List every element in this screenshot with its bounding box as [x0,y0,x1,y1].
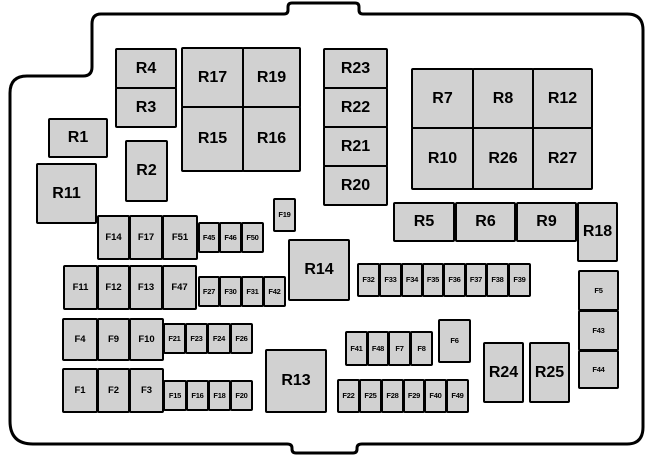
fuse-F43: F43 [578,310,619,351]
fuse-F35: F35 [422,263,444,297]
fuse-F7: F7 [388,331,411,366]
relay-R11: R11 [36,163,97,224]
fuse-F1: F1 [62,368,98,413]
fuse-F31: F31 [241,276,264,307]
fuse-F20: F20 [230,380,253,411]
relay-R1: R1 [48,118,108,158]
fuse-F38: F38 [486,263,509,297]
fuse-F30: F30 [219,276,242,307]
fuse-F28: F28 [381,379,404,413]
fuse-box-diagram: R4R3R17R19R15R16R1R2R11R23R22R21R20R7R8R… [0,0,650,461]
relay-R20: R20 [323,165,388,206]
fuse-F11: F11 [63,265,98,310]
fuse-F13: F13 [129,265,163,310]
fuse-F5: F5 [578,270,619,311]
relay-R16: R16 [242,106,301,172]
relay-R2: R2 [125,140,168,202]
fuse-F2: F2 [97,368,130,413]
fuse-F42: F42 [263,276,286,307]
fuse-F33: F33 [379,263,402,297]
fuse-F32: F32 [357,263,380,297]
fuse-F4: F4 [62,318,98,361]
fuse-F17: F17 [129,215,163,260]
fuse-F48: F48 [367,331,389,366]
relay-R4: R4 [115,48,177,89]
fuse-F3: F3 [129,368,164,413]
fuse-F22: F22 [337,379,360,413]
fuse-F39: F39 [508,263,531,297]
fuse-F47: F47 [162,265,197,310]
relay-R15: R15 [181,106,244,172]
relay-R5: R5 [393,202,455,242]
fuse-F26: F26 [230,323,253,354]
fuse-F6: F6 [438,319,471,363]
fuse-F15: F15 [163,380,187,411]
relay-R19: R19 [242,47,301,108]
relay-R24: R24 [483,342,524,403]
fuse-F21: F21 [163,323,186,354]
fuse-F12: F12 [97,265,130,310]
fuse-F9: F9 [97,318,130,361]
relay-R3: R3 [115,87,177,128]
relay-R12: R12 [532,68,593,129]
fuse-F51: F51 [162,215,198,260]
fuse-F50: F50 [241,222,264,253]
fuse-F29: F29 [403,379,425,413]
relay-R27: R27 [532,127,593,190]
relay-R25: R25 [529,342,570,403]
relay-R23: R23 [323,48,388,89]
fuse-F36: F36 [443,263,466,297]
fuse-F24: F24 [207,323,231,354]
fuse-F25: F25 [359,379,382,413]
fuse-F8: F8 [410,331,433,366]
fuse-F34: F34 [401,263,423,297]
fuse-F10: F10 [129,318,164,361]
relay-R13: R13 [265,349,327,413]
fuse-F23: F23 [185,323,208,354]
relay-R17: R17 [181,47,244,108]
fuse-F49: F49 [446,379,469,413]
relay-R26: R26 [472,127,534,190]
fuse-F27: F27 [198,276,220,307]
fuse-F40: F40 [424,379,447,413]
fuse-F41: F41 [345,331,368,366]
fuse-F16: F16 [186,380,209,411]
relay-R10: R10 [411,127,474,190]
boxes-layer: R4R3R17R19R15R16R1R2R11R23R22R21R20R7R8R… [0,0,650,461]
relay-R8: R8 [472,68,534,129]
relay-R9: R9 [516,202,577,242]
relay-R14: R14 [288,239,350,301]
fuse-F18: F18 [208,380,231,411]
relay-R18: R18 [577,202,618,262]
fuse-F45: F45 [198,222,220,253]
fuse-F46: F46 [219,222,242,253]
fuse-F14: F14 [97,215,130,260]
relay-R7: R7 [411,68,474,129]
fuse-F44: F44 [578,350,619,389]
fuse-F19: F19 [273,198,296,232]
relay-R6: R6 [455,202,516,242]
relay-R22: R22 [323,87,388,128]
fuse-F37: F37 [465,263,487,297]
relay-R21: R21 [323,126,388,167]
